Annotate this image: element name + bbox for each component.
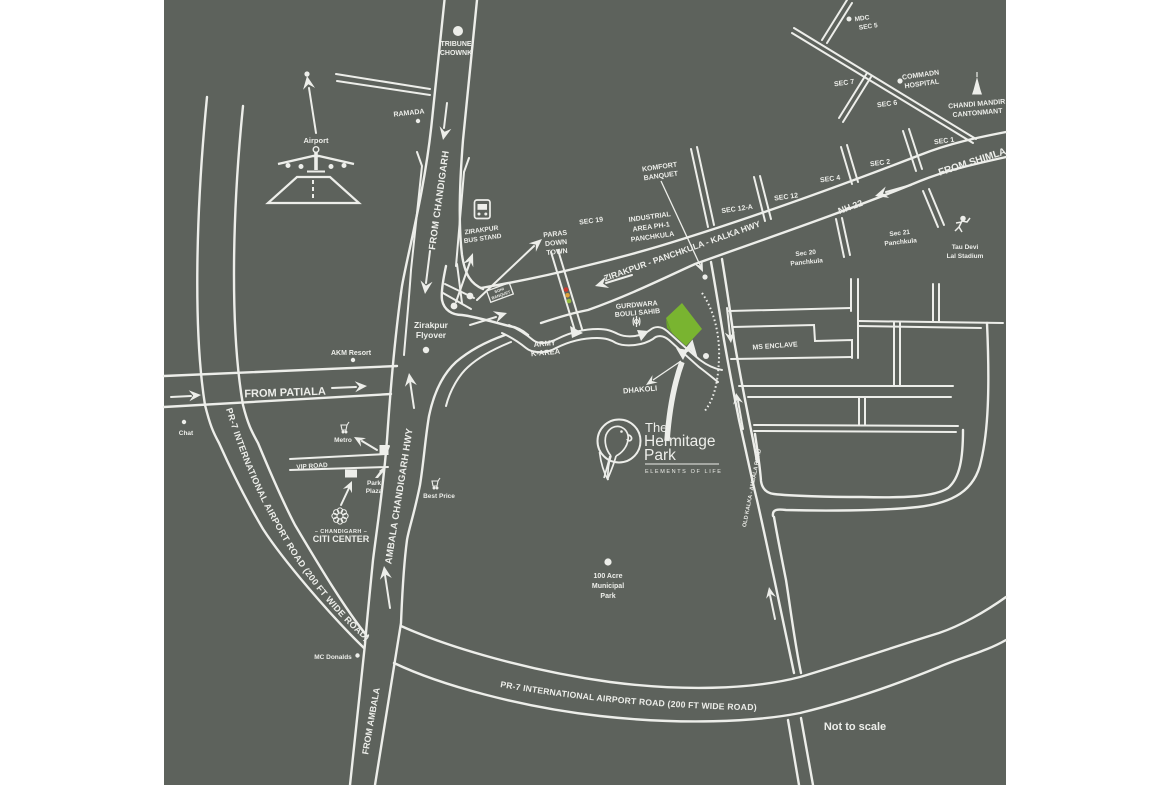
svg-text:MC Donalds: MC Donalds xyxy=(314,654,352,661)
svg-text:Park: Park xyxy=(600,593,615,600)
svg-text:Park: Park xyxy=(367,480,381,487)
svg-text:Plaza: Plaza xyxy=(366,488,383,495)
svg-text:Not to scale: Not to scale xyxy=(824,721,886,733)
svg-text:Flyover: Flyover xyxy=(416,330,447,340)
svg-text:Tau Devi: Tau Devi xyxy=(952,244,979,251)
svg-text:Airport: Airport xyxy=(304,136,330,145)
svg-text:CITI CENTER: CITI CENTER xyxy=(313,534,370,544)
svg-text:Park: Park xyxy=(644,447,676,464)
svg-text:Chat: Chat xyxy=(179,430,194,437)
svg-text:Best Price: Best Price xyxy=(423,493,455,500)
svg-text:Lal Stadium: Lal Stadium xyxy=(947,253,984,260)
svg-text:Zirakpur: Zirakpur xyxy=(414,320,449,330)
svg-text:CHOWNK: CHOWNK xyxy=(440,50,472,57)
svg-text:ELEMENTS OF LIFE: ELEMENTS OF LIFE xyxy=(645,469,723,475)
svg-text:AKM Resort: AKM Resort xyxy=(331,350,372,357)
svg-text:TRIBUNE: TRIBUNE xyxy=(440,41,471,48)
svg-text:Municipal: Municipal xyxy=(592,583,624,590)
svg-text:100 Acre: 100 Acre xyxy=(594,573,623,580)
svg-text:Metro: Metro xyxy=(334,437,352,444)
